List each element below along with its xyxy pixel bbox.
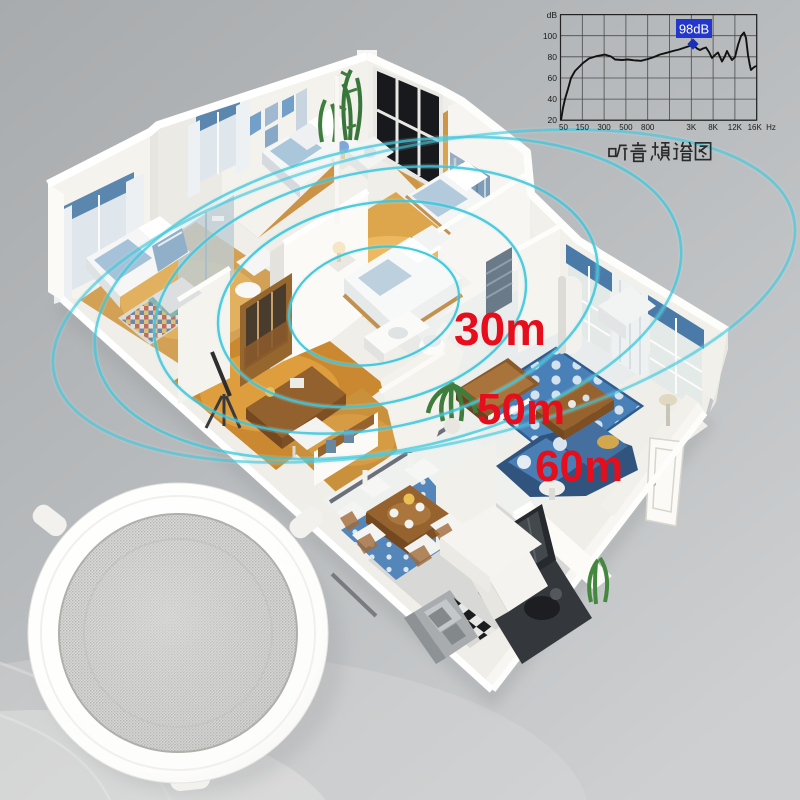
- svg-text:30m: 30m: [454, 303, 546, 355]
- svg-text:300: 300: [597, 123, 611, 132]
- svg-text:800: 800: [641, 123, 655, 132]
- svg-text:20: 20: [548, 115, 558, 125]
- svg-text:Hz: Hz: [766, 123, 776, 132]
- svg-text:80: 80: [548, 52, 558, 62]
- svg-text:50: 50: [559, 123, 568, 132]
- svg-text:100: 100: [543, 31, 557, 41]
- svg-text:16K: 16K: [748, 123, 763, 132]
- svg-text:150: 150: [576, 123, 590, 132]
- svg-text:500: 500: [619, 123, 633, 132]
- svg-text:40: 40: [548, 94, 558, 104]
- svg-text:60: 60: [548, 73, 558, 83]
- svg-text:50m: 50m: [477, 385, 565, 434]
- svg-text:8K: 8K: [708, 123, 718, 132]
- svg-text:12K: 12K: [728, 123, 743, 132]
- svg-text:98dB: 98dB: [679, 22, 709, 37]
- svg-text:3K: 3K: [686, 123, 696, 132]
- svg-text:dB: dB: [547, 10, 558, 20]
- svg-text:60m: 60m: [535, 442, 623, 491]
